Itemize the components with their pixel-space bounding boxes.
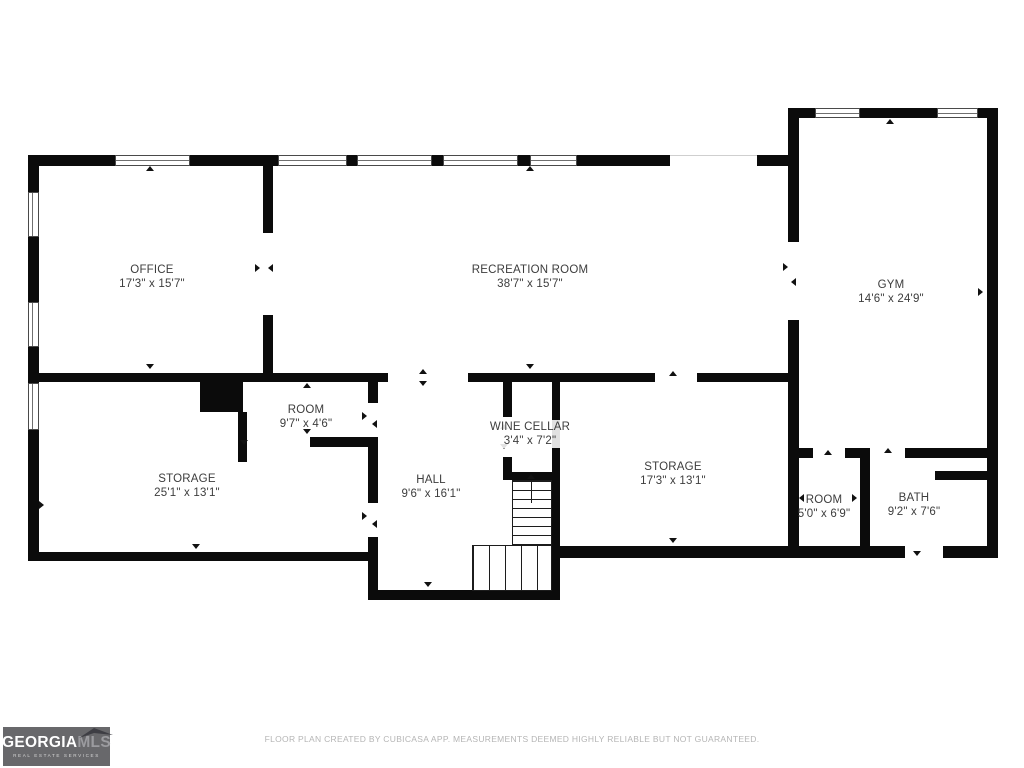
room-label-hall: HALL 9'6" x 16'1"	[401, 473, 460, 501]
dimension-mark	[146, 166, 154, 171]
room-label-bath: BATH 9'2" x 7'6"	[888, 491, 940, 519]
roof-icon	[79, 728, 113, 738]
room-dimensions: 3'4" x 7'2"	[488, 434, 572, 448]
door-mark	[419, 369, 427, 374]
dimension-mark	[39, 501, 44, 509]
door-mark	[362, 512, 367, 520]
wall	[432, 155, 443, 166]
room-name: BATH	[888, 491, 940, 505]
wall	[468, 373, 655, 382]
wall	[935, 471, 987, 480]
door-mark	[669, 371, 677, 376]
room-dimensions: 9'2" x 7'6"	[888, 505, 940, 519]
wall	[190, 155, 278, 166]
wall	[368, 373, 378, 403]
window	[443, 155, 518, 166]
room-dimensions: 9'6" x 16'1"	[401, 487, 460, 501]
door-mark	[913, 551, 921, 556]
door-mark	[255, 264, 260, 272]
room-dimensions: 17'3" x 13'1"	[640, 474, 706, 488]
room-dimensions: 25'1" x 13'1"	[154, 486, 220, 500]
dimension-mark	[886, 119, 894, 124]
door-mark	[824, 450, 832, 455]
wall	[28, 552, 378, 561]
wall	[860, 108, 937, 118]
wall	[28, 237, 39, 302]
window	[28, 383, 39, 430]
dimension-mark	[192, 544, 200, 549]
window	[530, 155, 577, 166]
window	[278, 155, 347, 166]
room-dimensions: 38'7" x 15'7"	[472, 277, 589, 291]
floor-plan: OFFICE 17'3" x 15'7" RECREATION ROOM 38'…	[0, 0, 1024, 768]
dimension-mark	[424, 582, 432, 587]
wall	[799, 448, 813, 458]
wall	[28, 155, 39, 192]
wall	[860, 448, 870, 546]
room-dimensions: 17'3" x 15'7"	[119, 277, 185, 291]
wall	[503, 382, 512, 417]
staircase-winder	[472, 545, 552, 591]
wall	[263, 315, 273, 373]
room-name: GYM	[858, 278, 924, 292]
logo-tagline: REAL ESTATE SERVICES	[13, 753, 100, 758]
room-name: ROOM	[280, 403, 332, 417]
door-mark	[268, 264, 273, 272]
room-name: STORAGE	[154, 472, 220, 486]
wall	[987, 108, 998, 558]
wall	[518, 155, 530, 166]
dimension-mark	[146, 364, 154, 369]
staircase-upper-flight	[512, 480, 552, 546]
dimension-mark	[978, 288, 983, 296]
wall	[503, 457, 512, 480]
window	[28, 302, 39, 347]
wall	[368, 590, 560, 600]
window	[115, 155, 190, 166]
room-label-recreation-room: RECREATION ROOM 38'7" x 15'7"	[472, 263, 589, 291]
wall	[368, 437, 378, 503]
window	[28, 192, 39, 237]
wall	[347, 155, 357, 166]
room-label-office: OFFICE 17'3" x 15'7"	[119, 263, 185, 291]
wall	[28, 430, 39, 561]
room-name: WINE CELLAR	[488, 420, 572, 434]
chimney-block	[200, 375, 243, 412]
wall	[905, 448, 987, 458]
window	[937, 108, 978, 118]
room-name: STORAGE	[640, 460, 706, 474]
room-label-storage-right: STORAGE 17'3" x 13'1"	[640, 460, 706, 488]
window	[815, 108, 860, 118]
dimension-mark	[526, 166, 534, 171]
room-label-gym: GYM 14'6" x 24'9"	[858, 278, 924, 306]
room-label-room-lower: ROOM 5'0" x 6'9"	[798, 493, 850, 521]
footer-disclaimer: FLOOR PLAN CREATED BY CUBICASA APP. MEAS…	[0, 734, 1024, 744]
door-opening	[670, 155, 757, 166]
wall	[238, 412, 247, 462]
door-mark	[783, 263, 788, 271]
wall	[577, 155, 670, 166]
wall	[552, 373, 560, 600]
dimension-mark	[303, 383, 311, 388]
room-name: HALL	[401, 473, 460, 487]
room-dimensions: 5'0" x 6'9"	[798, 507, 850, 521]
stair-direction-arrow	[531, 480, 532, 503]
room-dimensions: 9'7" x 4'6"	[280, 417, 332, 431]
room-name: RECREATION ROOM	[472, 263, 589, 277]
dimension-mark	[526, 364, 534, 369]
wall	[788, 108, 799, 242]
room-label-wine-cellar: WINE CELLAR 3'4" x 7'2"	[488, 420, 572, 448]
wall	[788, 320, 799, 558]
wall	[263, 166, 273, 233]
door-mark	[372, 520, 377, 528]
room-dimensions: 14'6" x 24'9"	[858, 292, 924, 306]
dimension-mark	[852, 494, 857, 502]
dimension-mark	[669, 538, 677, 543]
wall	[310, 437, 368, 447]
door-mark	[884, 448, 892, 453]
room-label-room-upper: ROOM 9'7" x 4'6"	[280, 403, 332, 431]
logo-wordmark: GEORGIAMLS	[2, 735, 111, 751]
door-mark	[362, 412, 367, 420]
room-name: OFFICE	[119, 263, 185, 277]
georgia-mls-logo: GEORGIAMLS REAL ESTATE SERVICES	[3, 727, 110, 766]
room-label-storage-left: STORAGE 25'1" x 13'1"	[154, 472, 220, 500]
room-name: ROOM	[798, 493, 850, 507]
wall	[28, 155, 115, 166]
door-mark	[372, 420, 377, 428]
door-mark	[419, 381, 427, 386]
wall	[697, 373, 788, 382]
door-mark	[240, 440, 248, 445]
wall	[552, 546, 905, 558]
door-mark	[791, 278, 796, 286]
stair-arrow-head	[527, 474, 535, 479]
window	[357, 155, 432, 166]
logo-text-georgia: GEORGIA	[2, 734, 77, 751]
